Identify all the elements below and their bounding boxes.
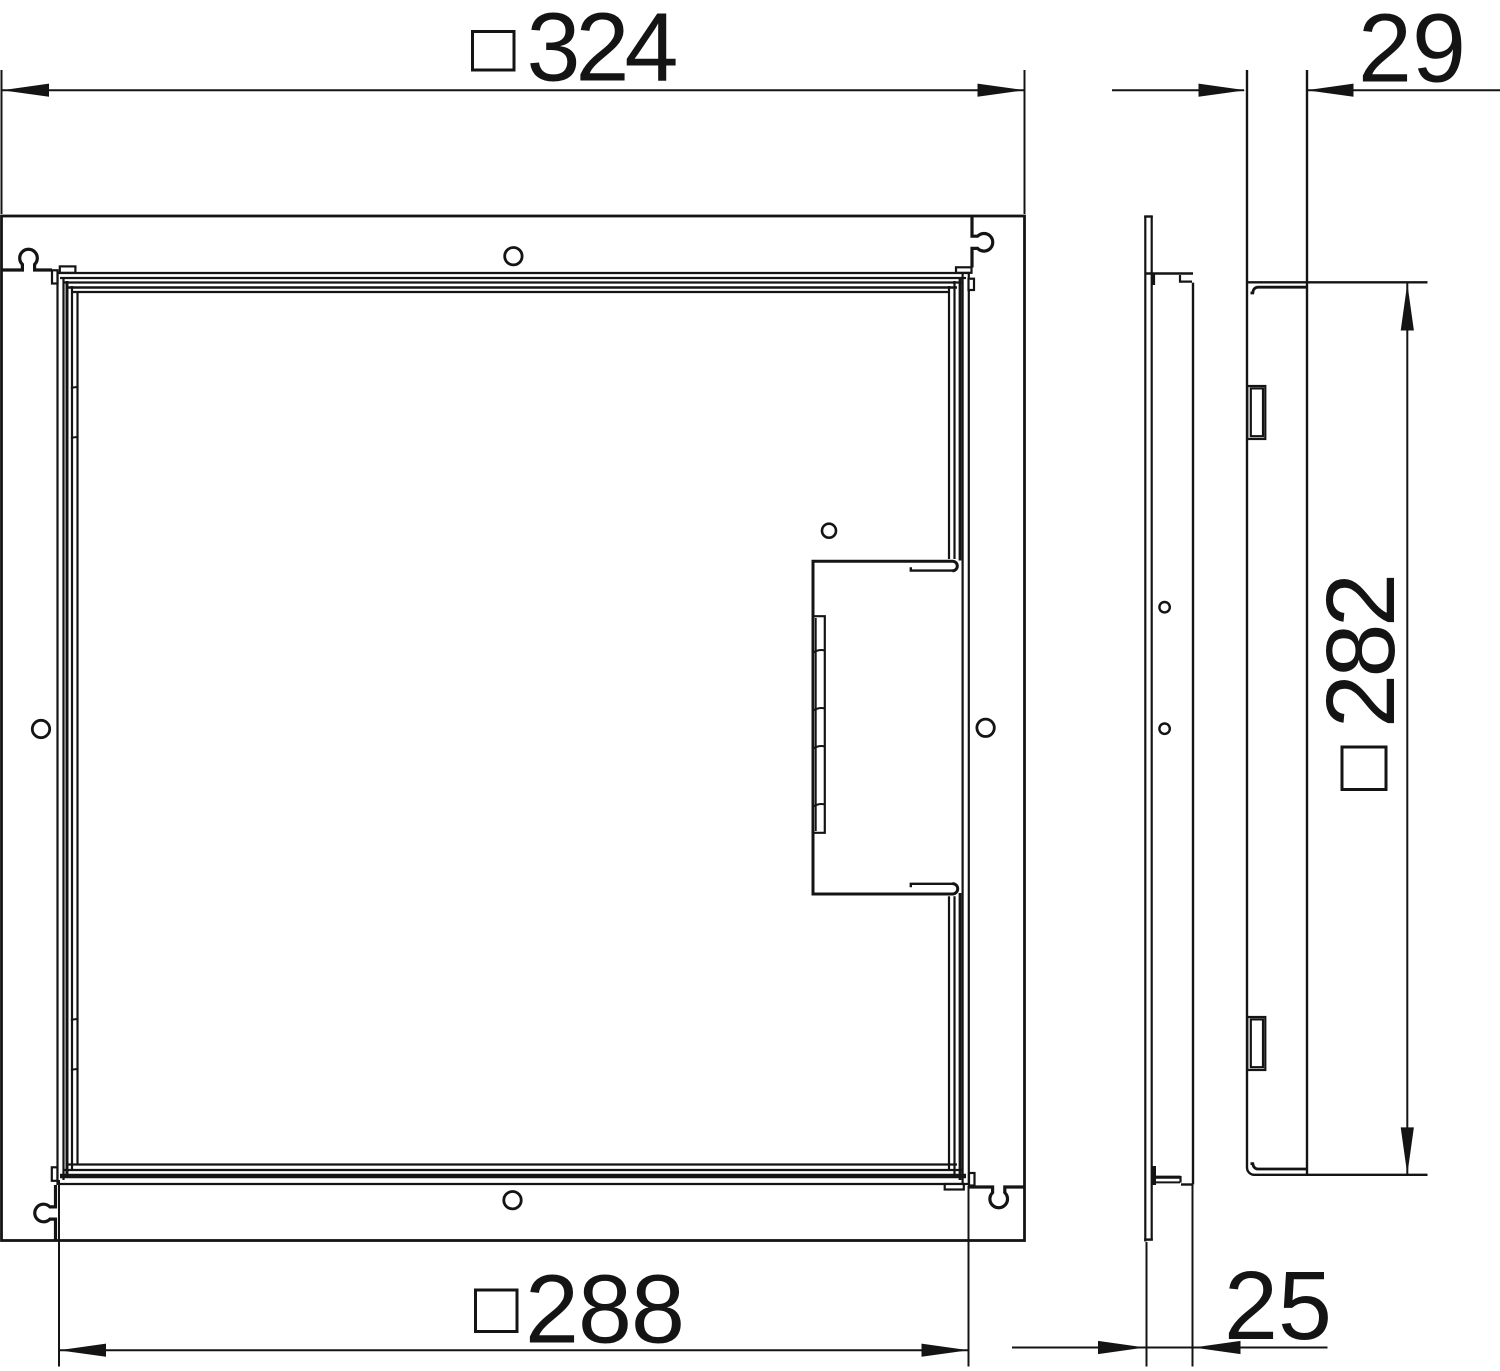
- svg-text:25: 25: [1224, 1251, 1332, 1360]
- svg-text:282: 282: [1306, 573, 1415, 728]
- svg-text:29: 29: [1358, 0, 1466, 103]
- svg-text:288: 288: [525, 1254, 685, 1363]
- svg-text:324: 324: [527, 0, 679, 101]
